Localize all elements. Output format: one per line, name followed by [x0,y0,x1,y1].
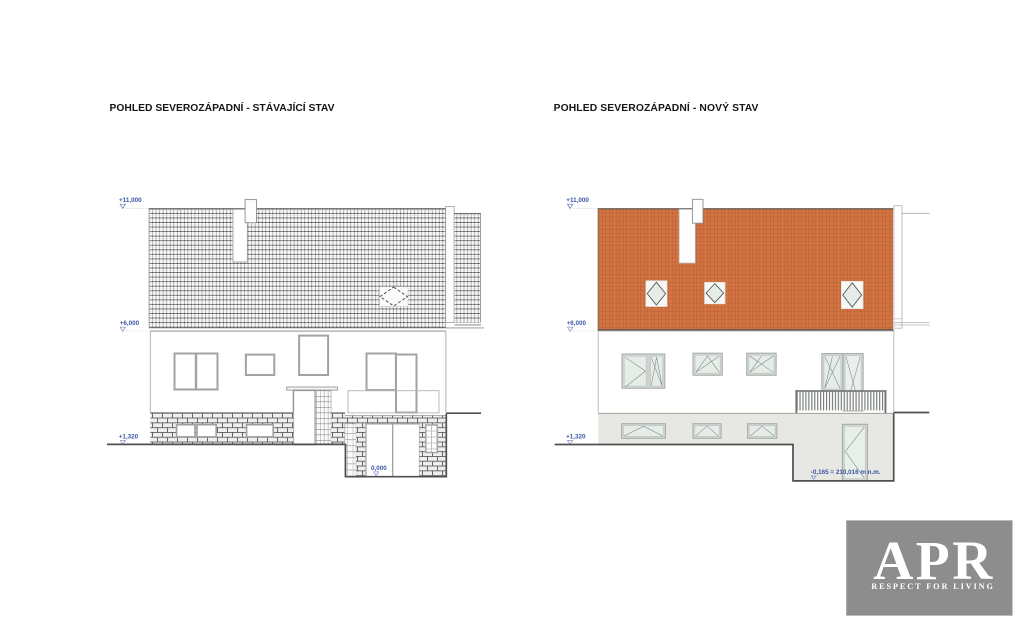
svg-text:+11,000: +11,000 [566,197,589,204]
svg-text:0,000: 0,000 [371,465,387,472]
svg-text:+1,320: +1,320 [566,434,586,441]
svg-text:+6,000: +6,000 [120,320,140,327]
svg-text:+6,000: +6,000 [567,320,587,327]
svg-text:POHLED SEVEROZÁPADNÍ - STÁVAJÍ: POHLED SEVEROZÁPADNÍ - STÁVAJÍCÍ STAV [110,101,335,114]
svg-text:RESPECT FOR LIVING: RESPECT FOR LIVING [871,582,995,591]
svg-text:POHLED SEVEROZÁPADNÍ - NOVÝ ST: POHLED SEVEROZÁPADNÍ - NOVÝ STAV [554,101,759,114]
svg-text:+1,320: +1,320 [119,434,139,441]
svg-text:+11,000: +11,000 [119,197,142,204]
svg-text:-0,165 = 210,016 m n.m.: -0,165 = 210,016 m n.m. [811,469,881,476]
